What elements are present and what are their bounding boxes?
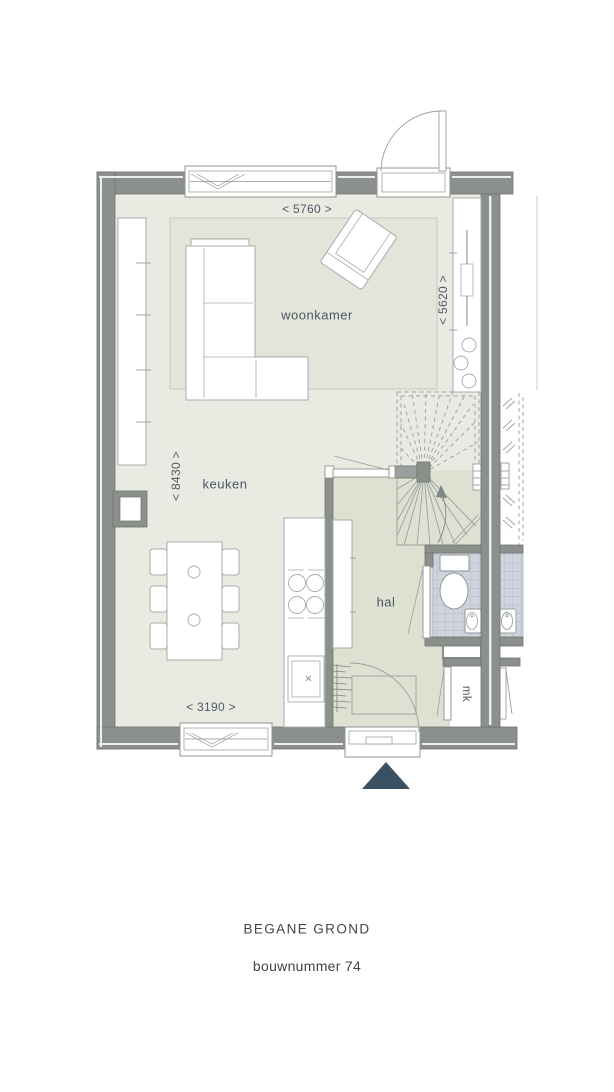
wall-duct-box: [113, 491, 147, 527]
hob-burner: [307, 597, 324, 614]
window-top: [185, 166, 336, 197]
hob-burner: [289, 597, 306, 614]
kitchen-counter: [284, 518, 325, 727]
build-number: bouwnummer 74: [253, 958, 361, 974]
west-wall-cabinet: [118, 218, 151, 465]
hob-burner: [289, 575, 306, 592]
floor-title: BEGANE GROND: [243, 922, 370, 937]
dimension-right: < 5620 >: [436, 275, 450, 325]
rear-door-swing-arc: [381, 111, 442, 171]
dimension-top: < 5760 >: [282, 202, 332, 216]
window-bottom: [180, 723, 272, 756]
neighbor-unit-sliver: [500, 196, 537, 727]
chair: [222, 586, 239, 612]
dimension-bottom: < 3190 >: [186, 700, 236, 714]
toilet-room: [433, 553, 481, 637]
chair: [222, 549, 239, 575]
room-label-hal: hal: [377, 595, 396, 610]
hob-burner: [307, 575, 324, 592]
chair: [150, 586, 167, 612]
dining-set: [150, 542, 239, 660]
floor-plan-page: woonkamer keuken hal mk < 5760 > < 5620 …: [0, 0, 614, 1092]
dining-table: [167, 542, 222, 660]
chair: [150, 549, 167, 575]
east-wall-cabinet: [449, 198, 481, 392]
toilet-bowl: [440, 573, 468, 609]
stair-newel-post: [417, 462, 430, 482]
chair: [222, 623, 239, 649]
chair: [150, 623, 167, 649]
toilet-cistern: [440, 555, 469, 571]
dimension-left: < 8430 >: [169, 451, 183, 501]
stair-handrail: [394, 466, 418, 478]
room-label-mk: mk: [460, 686, 472, 702]
room-label-woonkamer: woonkamer: [281, 308, 353, 323]
entrance-marker-triangle: [362, 762, 410, 789]
rear-door: [377, 111, 450, 197]
room-label-keuken: keuken: [203, 477, 248, 492]
